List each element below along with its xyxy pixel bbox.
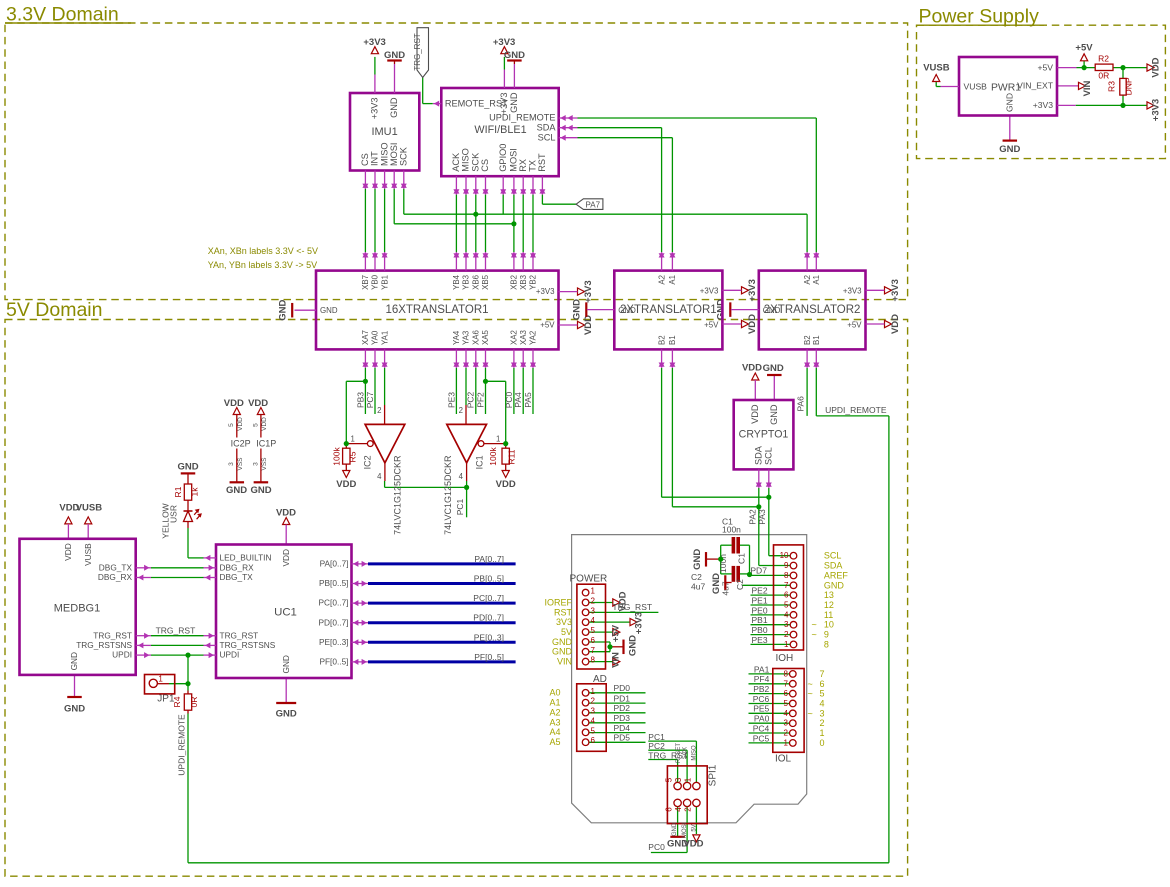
svg-text:~: ~ [808, 708, 813, 718]
svg-text:AREF: AREF [824, 570, 849, 580]
svg-text:~: ~ [812, 620, 817, 630]
svg-text:VDD: VDD [281, 549, 291, 567]
svg-text:GND: GND [572, 299, 583, 320]
svg-text:1: 1 [784, 738, 789, 747]
svg-text:VDD: VDD [336, 479, 356, 490]
svg-text:PA5: PA5 [523, 392, 533, 408]
svg-text:10: 10 [824, 620, 834, 630]
svg-text:AD: AD [593, 674, 607, 685]
svg-text:RST: RST [537, 153, 547, 172]
svg-text:0R: 0R [189, 697, 199, 708]
svg-text:+3V3: +3V3 [890, 279, 901, 301]
svg-text:3: 3 [252, 462, 259, 466]
svg-text:1: 1 [351, 435, 355, 444]
svg-text:GND: GND [999, 144, 1020, 155]
svg-text:PE0: PE0 [752, 605, 768, 615]
svg-text:UPDI: UPDI [112, 650, 132, 660]
svg-text:PF2: PF2 [475, 392, 485, 408]
svg-text:YB0: YB0 [371, 274, 380, 290]
svg-text:PE[0..3]: PE[0..3] [474, 632, 504, 642]
svg-text:6: 6 [591, 636, 596, 645]
svg-text:5: 5 [784, 699, 789, 708]
svg-text:PA7: PA7 [586, 200, 601, 209]
svg-text:VSS: VSS [237, 457, 244, 471]
svg-text:PB[0..5]: PB[0..5] [319, 578, 349, 588]
svg-text:PD0: PD0 [614, 683, 631, 693]
svg-text:PD5: PD5 [614, 733, 631, 743]
svg-text:VDD: VDD [261, 417, 268, 431]
svg-text:XB3: XB3 [519, 274, 528, 290]
svg-text:3: 3 [228, 462, 235, 466]
svg-text:VDD: VDD [750, 404, 760, 424]
svg-text:YB4: YB4 [452, 274, 461, 290]
svg-text:GND: GND [627, 635, 638, 656]
svg-text:UPDI: UPDI [220, 650, 240, 660]
svg-text:GND: GND [1005, 93, 1015, 112]
svg-text:ACK: ACK [451, 152, 461, 172]
svg-text:5: 5 [820, 689, 825, 699]
svg-text:PC2: PC2 [466, 391, 476, 408]
svg-text:SCL: SCL [824, 551, 842, 561]
svg-text:TRG_RST: TRG_RST [93, 630, 132, 640]
svg-text:VDD: VDD [224, 398, 244, 409]
svg-text:1: 1 [784, 640, 789, 649]
svg-text:VIN: VIN [611, 652, 622, 668]
svg-text:POWER: POWER [570, 574, 608, 585]
svg-text:3: 3 [591, 606, 596, 615]
svg-text:100k: 100k [331, 447, 341, 466]
svg-text:74LVC1G125DCKR: 74LVC1G125DCKR [392, 455, 402, 535]
svg-text:Power Supply: Power Supply [919, 6, 1040, 28]
svg-text:IC1: IC1 [475, 455, 485, 469]
svg-text:TRG_RST: TRG_RST [220, 630, 259, 640]
svg-text:GND: GND [276, 709, 297, 720]
svg-text:XB5: XB5 [481, 274, 490, 290]
svg-text:8: 8 [784, 669, 789, 678]
svg-text:+3V3: +3V3 [583, 280, 594, 302]
svg-text:2: 2 [820, 718, 825, 728]
svg-text:GND: GND [177, 462, 198, 473]
svg-text:VIN: VIN [1082, 80, 1093, 96]
svg-text:VDD: VDD [742, 363, 762, 374]
svg-text:IC2: IC2 [362, 455, 372, 469]
svg-text:YB3: YB3 [462, 274, 471, 290]
svg-text:74LVC1G125DCKR: 74LVC1G125DCKR [443, 455, 453, 535]
svg-text:1: 1 [496, 435, 500, 444]
svg-text:+5V: +5V [1075, 43, 1093, 54]
svg-text:GND: GND [769, 404, 779, 425]
svg-text:1: 1 [158, 675, 163, 684]
svg-text:PC6: PC6 [753, 694, 770, 704]
svg-text:4: 4 [784, 709, 789, 718]
svg-text:PE2: PE2 [752, 586, 768, 596]
svg-text:MISO: MISO [379, 143, 389, 166]
svg-text:GND: GND [281, 655, 291, 673]
svg-text:7: 7 [784, 581, 789, 590]
svg-text:SCL: SCL [538, 132, 556, 142]
svg-text:DBG_RX: DBG_RX [220, 562, 255, 572]
svg-text:8: 8 [824, 639, 829, 649]
svg-text:10: 10 [780, 551, 789, 560]
svg-text:PA4: PA4 [513, 392, 523, 408]
svg-text:5: 5 [591, 626, 596, 635]
svg-text:5V Domain: 5V Domain [6, 299, 102, 321]
svg-text:2: 2 [377, 406, 381, 415]
svg-text:PC7: PC7 [365, 391, 375, 408]
svg-text:TRG_RST: TRG_RST [156, 626, 196, 636]
svg-text:VDD: VDD [63, 543, 73, 561]
svg-text:IOH: IOH [776, 653, 794, 664]
svg-text:TRG_RST: TRG_RST [612, 602, 652, 612]
svg-text:~: ~ [808, 689, 813, 699]
svg-text:VDD: VDD [496, 479, 516, 490]
svg-text:C1: C1 [736, 553, 746, 564]
svg-text:VIN: VIN [557, 657, 572, 667]
svg-text:DNP: DNP [1124, 77, 1134, 95]
svg-text:VDD: VDD [1151, 57, 1162, 77]
svg-text:5: 5 [591, 726, 596, 735]
svg-text:USR: USR [169, 505, 179, 523]
svg-text:VUSB: VUSB [964, 82, 988, 92]
svg-text:UPDI_REMOTE: UPDI_REMOTE [176, 714, 186, 776]
svg-text:A1: A1 [549, 698, 560, 708]
svg-text:+3V3: +3V3 [536, 287, 555, 296]
svg-text:4: 4 [459, 472, 464, 481]
svg-text:PE5: PE5 [753, 704, 769, 714]
svg-text:GND: GND [824, 580, 845, 590]
svg-text:MISO: MISO [691, 745, 697, 761]
svg-text:MEDBG1: MEDBG1 [54, 603, 100, 615]
svg-text:PC0: PC0 [648, 842, 665, 852]
svg-text:CRYPTO1: CRYPTO1 [739, 429, 789, 441]
svg-text:YAn, YBn labels 3.3V -> 5V: YAn, YBn labels 3.3V -> 5V [208, 260, 318, 270]
svg-text:+3V3: +3V3 [363, 37, 385, 48]
svg-text:VDD: VDD [237, 417, 244, 431]
svg-text:GND: GND [69, 652, 79, 670]
svg-text:11: 11 [824, 610, 833, 620]
svg-text:VDD: VDD [583, 315, 594, 335]
svg-text:PA1: PA1 [754, 664, 770, 674]
svg-text:XB6: XB6 [472, 274, 481, 290]
svg-text:PC4: PC4 [753, 723, 770, 733]
svg-text:IOREF: IOREF [544, 597, 572, 607]
svg-text:YA0: YA0 [371, 330, 380, 345]
svg-text:7: 7 [784, 679, 789, 688]
svg-text:A3: A3 [549, 717, 560, 727]
svg-text:TRG_RST: TRG_RST [413, 33, 422, 70]
svg-text:SCK: SCK [399, 146, 409, 166]
svg-text:IC1P: IC1P [256, 439, 276, 449]
svg-text:PB3: PB3 [355, 392, 365, 408]
svg-text:4: 4 [591, 716, 596, 725]
svg-text:YA4: YA4 [452, 330, 461, 345]
svg-text:GND: GND [389, 97, 399, 118]
svg-text:GND: GND [552, 647, 573, 657]
svg-text:B1: B1 [668, 335, 677, 345]
svg-text:PD3: PD3 [614, 713, 631, 723]
svg-text:100n: 100n [722, 525, 741, 535]
svg-text:DBG_RX: DBG_RX [98, 572, 133, 582]
svg-text:R5: R5 [348, 451, 358, 462]
svg-text:GND: GND [277, 300, 288, 321]
svg-text:GND: GND [763, 363, 784, 374]
svg-text:VIN_EXT: VIN_EXT [1017, 81, 1054, 91]
svg-text:9: 9 [824, 630, 829, 640]
svg-text:GND: GND [692, 549, 703, 570]
svg-text:+3V3: +3V3 [499, 92, 509, 114]
svg-text:PC1: PC1 [455, 498, 465, 515]
svg-text:+3V3: +3V3 [1151, 99, 1162, 121]
svg-text:MISO: MISO [461, 148, 471, 171]
svg-text:PD1: PD1 [614, 694, 631, 704]
svg-text:VDD: VDD [683, 839, 703, 850]
svg-text:+3V3: +3V3 [1033, 100, 1054, 110]
svg-text:7: 7 [820, 669, 825, 679]
svg-text:VUSB: VUSB [83, 543, 93, 566]
svg-text:DBG_TX: DBG_TX [99, 562, 133, 572]
svg-text:PE1: PE1 [752, 595, 768, 605]
svg-text:TRG_RSTSNS: TRG_RSTSNS [220, 640, 276, 650]
svg-text:2: 2 [784, 729, 789, 738]
svg-text:4: 4 [591, 616, 596, 625]
svg-text:PD7: PD7 [750, 566, 767, 576]
svg-text:PA[0..7]: PA[0..7] [320, 559, 349, 569]
svg-text:0R: 0R [1098, 70, 1109, 80]
svg-text:3: 3 [784, 719, 789, 728]
svg-text:1: 1 [683, 777, 692, 782]
svg-text:XA3: XA3 [519, 329, 528, 345]
svg-text:SDA: SDA [537, 122, 557, 132]
svg-text:8: 8 [784, 571, 789, 580]
svg-text:VSS: VSS [261, 457, 268, 471]
svg-text:100k: 100k [488, 447, 498, 466]
svg-text:GND: GND [763, 306, 781, 315]
svg-text:VDD: VDD [890, 314, 901, 334]
svg-text:PA0: PA0 [754, 714, 770, 724]
svg-text:UC1: UC1 [274, 607, 297, 619]
svg-text:B2: B2 [657, 335, 666, 345]
svg-text:INT: INT [370, 151, 380, 166]
svg-text:R3: R3 [1107, 81, 1117, 92]
svg-text:+5V: +5V [704, 321, 719, 330]
svg-text:XB7: XB7 [361, 275, 370, 290]
svg-text:+3V3: +3V3 [493, 37, 515, 48]
svg-text:TRG_RSTSNS: TRG_RSTSNS [76, 640, 132, 650]
svg-text:XA6: XA6 [472, 329, 481, 345]
svg-text:VDD: VDD [747, 314, 758, 334]
svg-text:GND: GND [711, 573, 722, 594]
svg-text:PA2: PA2 [747, 509, 757, 525]
svg-text:YA3: YA3 [462, 330, 471, 345]
svg-text:R2: R2 [1098, 54, 1109, 64]
svg-text:~: ~ [812, 630, 817, 640]
svg-text:2: 2 [591, 697, 596, 706]
svg-text:4: 4 [377, 472, 382, 481]
svg-text:2: 2 [683, 807, 692, 812]
svg-text:1: 1 [591, 587, 596, 596]
svg-text:+5V: +5V [1037, 62, 1053, 72]
svg-text:PB0: PB0 [752, 625, 768, 635]
svg-text:VUSB: VUSB [76, 503, 103, 514]
svg-text:7: 7 [591, 646, 596, 655]
svg-text:5V: 5V [692, 824, 698, 831]
svg-text:R11: R11 [506, 449, 516, 464]
svg-text:CS: CS [480, 159, 490, 172]
svg-text:B1: B1 [812, 335, 821, 345]
svg-text:PB1: PB1 [752, 615, 768, 625]
svg-text:+3V3: +3V3 [700, 287, 719, 296]
svg-text:YA2: YA2 [529, 331, 538, 345]
svg-text:LED_BUILTIN: LED_BUILTIN [220, 553, 272, 563]
svg-text:PB2: PB2 [753, 684, 769, 694]
svg-text:13: 13 [824, 590, 834, 600]
svg-text:SPI1: SPI1 [708, 764, 719, 786]
svg-text:5: 5 [252, 423, 259, 427]
svg-text:PF4: PF4 [754, 674, 770, 684]
svg-text:A2: A2 [803, 275, 812, 285]
svg-text:PA[0..7]: PA[0..7] [474, 554, 504, 564]
svg-text:C2: C2 [735, 579, 745, 590]
svg-text:CS: CS [360, 153, 370, 166]
svg-text:3: 3 [674, 777, 683, 782]
svg-text:A2: A2 [549, 707, 560, 717]
svg-text:5: 5 [784, 601, 789, 610]
svg-text:3V3: 3V3 [556, 617, 572, 627]
svg-text:2: 2 [591, 596, 596, 605]
svg-text:9: 9 [784, 561, 789, 570]
svg-text:5: 5 [228, 423, 235, 427]
svg-text:4: 4 [820, 698, 825, 708]
svg-text:XA5: XA5 [481, 329, 490, 345]
svg-text:GND: GND [384, 50, 405, 61]
svg-text:1: 1 [591, 687, 596, 696]
svg-text:~: ~ [808, 679, 813, 689]
svg-text:PC[0..7]: PC[0..7] [319, 598, 349, 608]
svg-text:6: 6 [820, 679, 825, 689]
svg-text:PE3: PE3 [446, 392, 456, 408]
svg-text:6: 6 [665, 807, 674, 812]
svg-text:PF[0..5]: PF[0..5] [319, 657, 348, 667]
svg-text:PD[0..7]: PD[0..7] [319, 617, 349, 627]
svg-text:1k: 1k [189, 487, 199, 497]
svg-text:GND: GND [250, 485, 271, 496]
svg-text:+5V: +5V [847, 321, 862, 330]
svg-text:R1: R1 [173, 486, 183, 497]
svg-text:+3V3: +3V3 [843, 287, 862, 296]
svg-text:2: 2 [784, 630, 789, 639]
svg-text:4: 4 [674, 807, 683, 812]
svg-text:6: 6 [784, 591, 789, 600]
svg-text:GND: GND [672, 822, 678, 836]
svg-text:5V: 5V [561, 627, 572, 637]
svg-text:YA1: YA1 [380, 331, 389, 345]
svg-text:PA6: PA6 [796, 396, 806, 412]
svg-text:4: 4 [784, 610, 789, 619]
svg-text:16XTRANSLATOR1: 16XTRANSLATOR1 [385, 304, 488, 316]
svg-text:XB2: XB2 [510, 275, 519, 290]
svg-text:SDA: SDA [824, 561, 843, 571]
svg-text:A1: A1 [812, 275, 821, 285]
svg-text:C2: C2 [691, 572, 702, 582]
svg-text:RST: RST [554, 607, 573, 617]
svg-text:UPDI_REMOTE: UPDI_REMOTE [825, 405, 887, 415]
svg-text:+5V: +5V [540, 321, 555, 330]
svg-text:XAn, XBn labels 3.3V <- 5V: XAn, XBn labels 3.3V <- 5V [208, 246, 318, 256]
svg-text:6: 6 [591, 736, 596, 745]
svg-text:MOSI: MOSI [682, 822, 688, 838]
svg-text:0: 0 [820, 738, 825, 748]
svg-text:MOSI: MOSI [389, 143, 399, 166]
svg-text:A5: A5 [549, 737, 560, 747]
svg-text:A1: A1 [668, 275, 677, 285]
svg-text:GND: GND [504, 50, 525, 61]
svg-text:PF[0..5]: PF[0..5] [474, 652, 504, 662]
svg-text:3: 3 [820, 708, 825, 718]
svg-text:3.3V Domain: 3.3V Domain [6, 4, 119, 26]
svg-text:PA3: PA3 [757, 509, 767, 525]
svg-text:VDD: VDD [248, 398, 268, 409]
svg-text:100n: 100n [718, 554, 728, 573]
svg-text:A0: A0 [549, 688, 560, 698]
svg-text:5: 5 [665, 777, 674, 782]
svg-text:PD2: PD2 [614, 703, 631, 713]
svg-text:PC5: PC5 [753, 733, 770, 743]
svg-text:XA7: XA7 [361, 330, 370, 345]
svg-text:GND: GND [320, 306, 338, 315]
svg-text:PD4: PD4 [614, 723, 631, 733]
svg-text:PB[0..5]: PB[0..5] [474, 574, 504, 584]
svg-text:GND: GND [716, 299, 727, 320]
svg-text:PE[0..3]: PE[0..3] [319, 637, 349, 647]
svg-text:12: 12 [824, 600, 834, 610]
svg-text:PE3: PE3 [752, 635, 768, 645]
svg-text:1: 1 [820, 728, 825, 738]
svg-text:YB1: YB1 [380, 275, 389, 290]
svg-text:SCK: SCK [471, 152, 481, 172]
svg-text:A2: A2 [657, 275, 666, 285]
svg-text:SDA: SDA [754, 445, 764, 465]
svg-text:+3V3: +3V3 [747, 279, 758, 301]
svg-text:IC2P: IC2P [231, 439, 251, 449]
svg-text:+3V3: +3V3 [370, 98, 380, 120]
svg-text:RX: RX [518, 159, 528, 172]
svg-text:TRG_RST: TRG_RST [648, 751, 688, 761]
svg-text:2: 2 [459, 406, 463, 415]
svg-text:R4: R4 [172, 696, 182, 707]
svg-text:3: 3 [784, 620, 789, 629]
svg-text:IOL: IOL [775, 754, 792, 765]
svg-text:GND: GND [552, 637, 573, 647]
svg-text:+5V: +5V [611, 624, 622, 642]
svg-text:GND: GND [226, 485, 247, 496]
svg-text:DBG_TX: DBG_TX [220, 572, 254, 582]
svg-text:SCL: SCL [764, 447, 774, 465]
svg-text:6: 6 [784, 689, 789, 698]
svg-text:GND: GND [64, 704, 85, 715]
svg-text:WIFI/BLE1: WIFI/BLE1 [474, 124, 526, 136]
svg-text:A4: A4 [549, 727, 560, 737]
svg-text:XA2: XA2 [510, 330, 519, 345]
svg-text:GND: GND [509, 92, 519, 113]
svg-text:GPIO0: GPIO0 [498, 144, 508, 172]
svg-text:8: 8 [591, 656, 596, 665]
svg-text:3: 3 [591, 707, 596, 716]
svg-text:B2: B2 [803, 335, 812, 345]
svg-text:PD[0..7]: PD[0..7] [473, 613, 504, 623]
svg-text:IMU1: IMU1 [371, 126, 397, 138]
svg-text:+3V3: +3V3 [634, 612, 645, 634]
svg-text:PC[0..7]: PC[0..7] [473, 593, 504, 603]
